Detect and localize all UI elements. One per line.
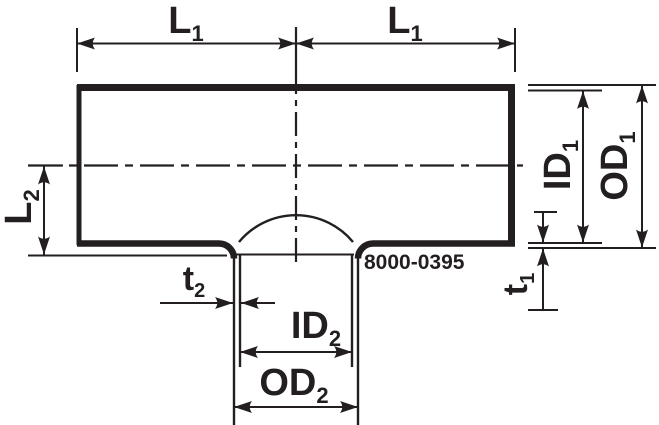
dim-label-l2: L2 bbox=[0, 189, 44, 224]
dim-label-t2: t2 bbox=[183, 260, 205, 302]
dim-label-id1: ID1 bbox=[537, 140, 583, 190]
part-number: 8000-0395 bbox=[364, 251, 465, 274]
dim-label-od2: OD2 bbox=[259, 362, 328, 408]
centerlines bbox=[28, 27, 523, 265]
tee-fitting-dimension-diagram: L1 L1 L2 ID1 OD1 t1 t2 ID2 OD2 8000-0395 bbox=[0, 0, 659, 425]
dim-label-l1-right: L1 bbox=[387, 0, 422, 46]
drawing-canvas: L1 L1 L2 ID1 OD1 t1 t2 ID2 OD2 8000-0395 bbox=[0, 0, 659, 425]
dim-label-t1: t1 bbox=[497, 273, 539, 295]
dim-label-l1-left: L1 bbox=[168, 0, 203, 46]
dimension-lines bbox=[44, 44, 642, 408]
dim-label-id2: ID2 bbox=[291, 305, 341, 351]
dim-label-od1: OD1 bbox=[594, 131, 640, 200]
dimension-labels: L1 L1 L2 ID1 OD1 t1 t2 ID2 OD2 8000-0395 bbox=[0, 0, 640, 408]
